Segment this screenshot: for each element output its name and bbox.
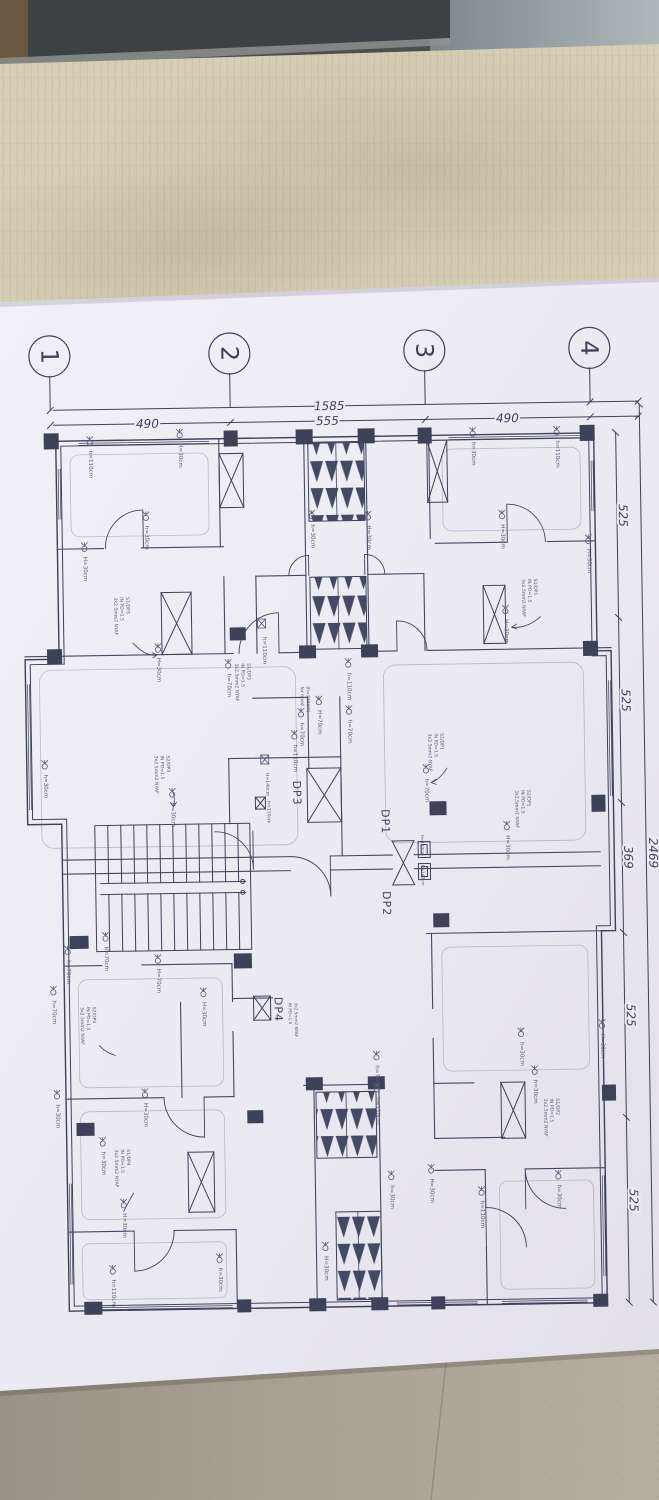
annotation-text: H=140cm [420, 835, 425, 856]
annotation-text: H=30cm [428, 1178, 434, 1203]
annotation-text: for hood [299, 686, 305, 705]
column [309, 1298, 326, 1311]
floor-plan-scene: 1234 15854905554902469525525369525525 DP… [0, 0, 659, 1500]
dimension-label: 525 [627, 1189, 641, 1212]
panel-label-dp2: DP2 [380, 891, 393, 916]
dimension-label: 555 [316, 414, 339, 428]
annotation-text: 3x2.5mm2 NYAF [233, 663, 240, 701]
annotation-text: h=110cm [345, 673, 351, 701]
column [247, 1110, 263, 1123]
annotation-text: IN PD=1.5 [85, 1007, 91, 1031]
annotation-text: IN PD=1.5 [119, 1149, 125, 1173]
annotation-text: h=70cm [225, 674, 231, 698]
annotation-text: h=30cm [518, 1042, 524, 1066]
annotation-text: 3x2.5mm2 NYAF [79, 1007, 86, 1045]
annotation-text: h=30cm [555, 1184, 561, 1208]
annotation-text: H=70cm [103, 946, 109, 971]
column [583, 641, 598, 656]
column [431, 1296, 445, 1309]
annotation-text: h=30cm [470, 442, 476, 466]
panel-label-dp1: DP1 [379, 809, 392, 834]
annotation-text: H=30cm [503, 619, 509, 644]
annotation-text: IN PD=1.5 [239, 663, 245, 687]
column [418, 427, 432, 443]
annotation-text: IN PD=1.5 [159, 756, 165, 780]
annotation-text: h=110cm [87, 451, 93, 479]
shaft-hatch-top-1 [308, 442, 365, 521]
grid-bubble-number: 1 [35, 348, 63, 364]
column [602, 1085, 616, 1101]
annotation-text: h=70cm [423, 778, 429, 802]
annotation-text: H=30cm [142, 1103, 148, 1128]
annotation-text: H=140cm [420, 865, 425, 886]
panel-label-dp3: DP3 [290, 780, 303, 805]
annotation-text: S2/DP3 [165, 755, 171, 772]
annotation-text: h=30cm [309, 524, 315, 548]
shaft-hatch-bottom-1 [316, 1091, 377, 1158]
column [84, 1302, 102, 1315]
annotation-text: h=30cm [100, 1152, 106, 1176]
annotation-text: h=110cm [291, 744, 297, 772]
annotation-text: h=110cm [374, 1097, 380, 1125]
annotation-text: S1/DP1 [532, 579, 538, 596]
annotation-text: 3x2.5mm2 NYAF [513, 790, 520, 828]
annotation-text: IN PD=1.5 [526, 579, 532, 603]
column [433, 913, 449, 927]
annotation-text: IN PD=1.5 [118, 597, 124, 621]
column [234, 953, 252, 968]
annotation-text: 3x2.5mm2 NYAF [112, 597, 119, 635]
column [591, 795, 605, 812]
annotation-text: S1/DP2 [554, 1098, 560, 1115]
annotation-text: S1/DP4 [125, 1149, 131, 1166]
column [44, 433, 59, 449]
annotation-text: H=30cm [121, 1213, 127, 1238]
dimension-label: 525 [616, 504, 630, 527]
dimension-label: 490 [136, 417, 159, 431]
annotation-text: IN PD=1.5 [432, 733, 438, 757]
grid-bubble-number: 3 [410, 343, 438, 359]
grid-bubble-stub [425, 370, 426, 404]
annotation-text: H=30cm [599, 1034, 605, 1059]
annotation-text: H=30cm [504, 835, 510, 860]
annotation-text: h=110cm [479, 1201, 485, 1229]
annotation-text: h=70cm [298, 722, 304, 746]
dimension-label: 490 [496, 411, 519, 425]
annotation-text: H=70cm [155, 969, 161, 994]
annotation-text: 3x2.5mm2 NYAF [542, 1099, 549, 1137]
annotation-text: H=30cm [585, 549, 591, 574]
column [429, 801, 446, 815]
annotation-text: h=30cm [143, 526, 149, 550]
annotation-text: H=30cm [177, 443, 183, 468]
grid-bubble-number: 2 [215, 346, 243, 362]
grid-bubble-stub [230, 374, 231, 408]
dimension-label: 525 [619, 689, 633, 712]
photo-of-architectural-floor-plan: 1234 15854905554902469525525369525525 DP… [0, 0, 659, 1500]
annotation-text: IN PD=1.5 [519, 790, 525, 814]
annotation-text: h=30cm [42, 774, 48, 798]
annotation-text: H=140cm [264, 773, 270, 797]
annotation-text: H=30cm [499, 524, 505, 549]
annotation-text: h=30cm [54, 1104, 60, 1128]
shaft-hatch-bottom-2 [336, 1211, 382, 1300]
annotation-text: 3x2.5mm2 NYAF [153, 756, 160, 794]
annotation-text: H=70cm [316, 710, 322, 735]
annotation-text: H=30cm [365, 525, 371, 550]
panel-label-dp4: DP4 [271, 997, 284, 1022]
column [47, 649, 62, 664]
annotation-text: h=70cm [50, 1000, 56, 1024]
annotation-text: S1/DP3 [245, 663, 251, 680]
column [76, 1123, 94, 1136]
column [580, 425, 595, 441]
annotation-text: h=70cm [346, 720, 352, 744]
dimension-label: 369 [621, 846, 635, 869]
grid-bubble-number: 4 [575, 340, 603, 356]
shaft-hatch-top-2 [310, 576, 367, 649]
annotation-text: H=30cm [169, 802, 175, 827]
annotation-text: S2/DP1 [525, 790, 531, 807]
annotation-text: 3x2.5mm2 NYAF [520, 579, 527, 617]
annotation-text: H=30cm [82, 557, 88, 582]
annotation-text: 3x2.5mm2 NYAF [294, 1003, 300, 1038]
annotation-text: H=30cm [155, 658, 161, 683]
dimension-label: 525 [624, 1004, 638, 1027]
annotation-text: H=30cm [201, 1002, 207, 1027]
column [69, 936, 88, 949]
dimension-label: 1585 [314, 399, 345, 413]
annotation-text: h=30cm [217, 1268, 223, 1292]
annotation-text: h=30cm [532, 1080, 538, 1104]
annotation-text: h=110cm [261, 637, 267, 665]
column [593, 1294, 608, 1307]
annotation-text: S2/DP1 [438, 733, 444, 750]
annotation-text: h=30cm [388, 1185, 394, 1209]
annotation-text: S2/DP4 [91, 1007, 97, 1024]
annotation-text: IN PD=1.5 [548, 1099, 554, 1123]
column [224, 430, 238, 446]
column [358, 428, 375, 443]
annotation-text: S1/DP3 [124, 597, 130, 614]
annotation-text: 3x2.5mm2 NYAF [113, 1149, 120, 1187]
annotation-text: h=70cm [65, 960, 71, 984]
grid-bubble-stub [50, 376, 51, 410]
annotation-text: h=110cm [265, 801, 271, 824]
annotation-text: H=30cm [323, 1256, 329, 1281]
dimension-label: 2469 [646, 838, 659, 869]
column [296, 429, 313, 444]
annotation-text: h=110cm [110, 1279, 116, 1307]
column [237, 1299, 251, 1312]
annotation-text: IN PD=1.5 [288, 1003, 293, 1025]
grid-bubble-stub [590, 368, 591, 402]
annotation-text: (h=210cm) [305, 686, 311, 712]
column [306, 1077, 323, 1090]
annotation-text: h=110cm [554, 440, 560, 468]
